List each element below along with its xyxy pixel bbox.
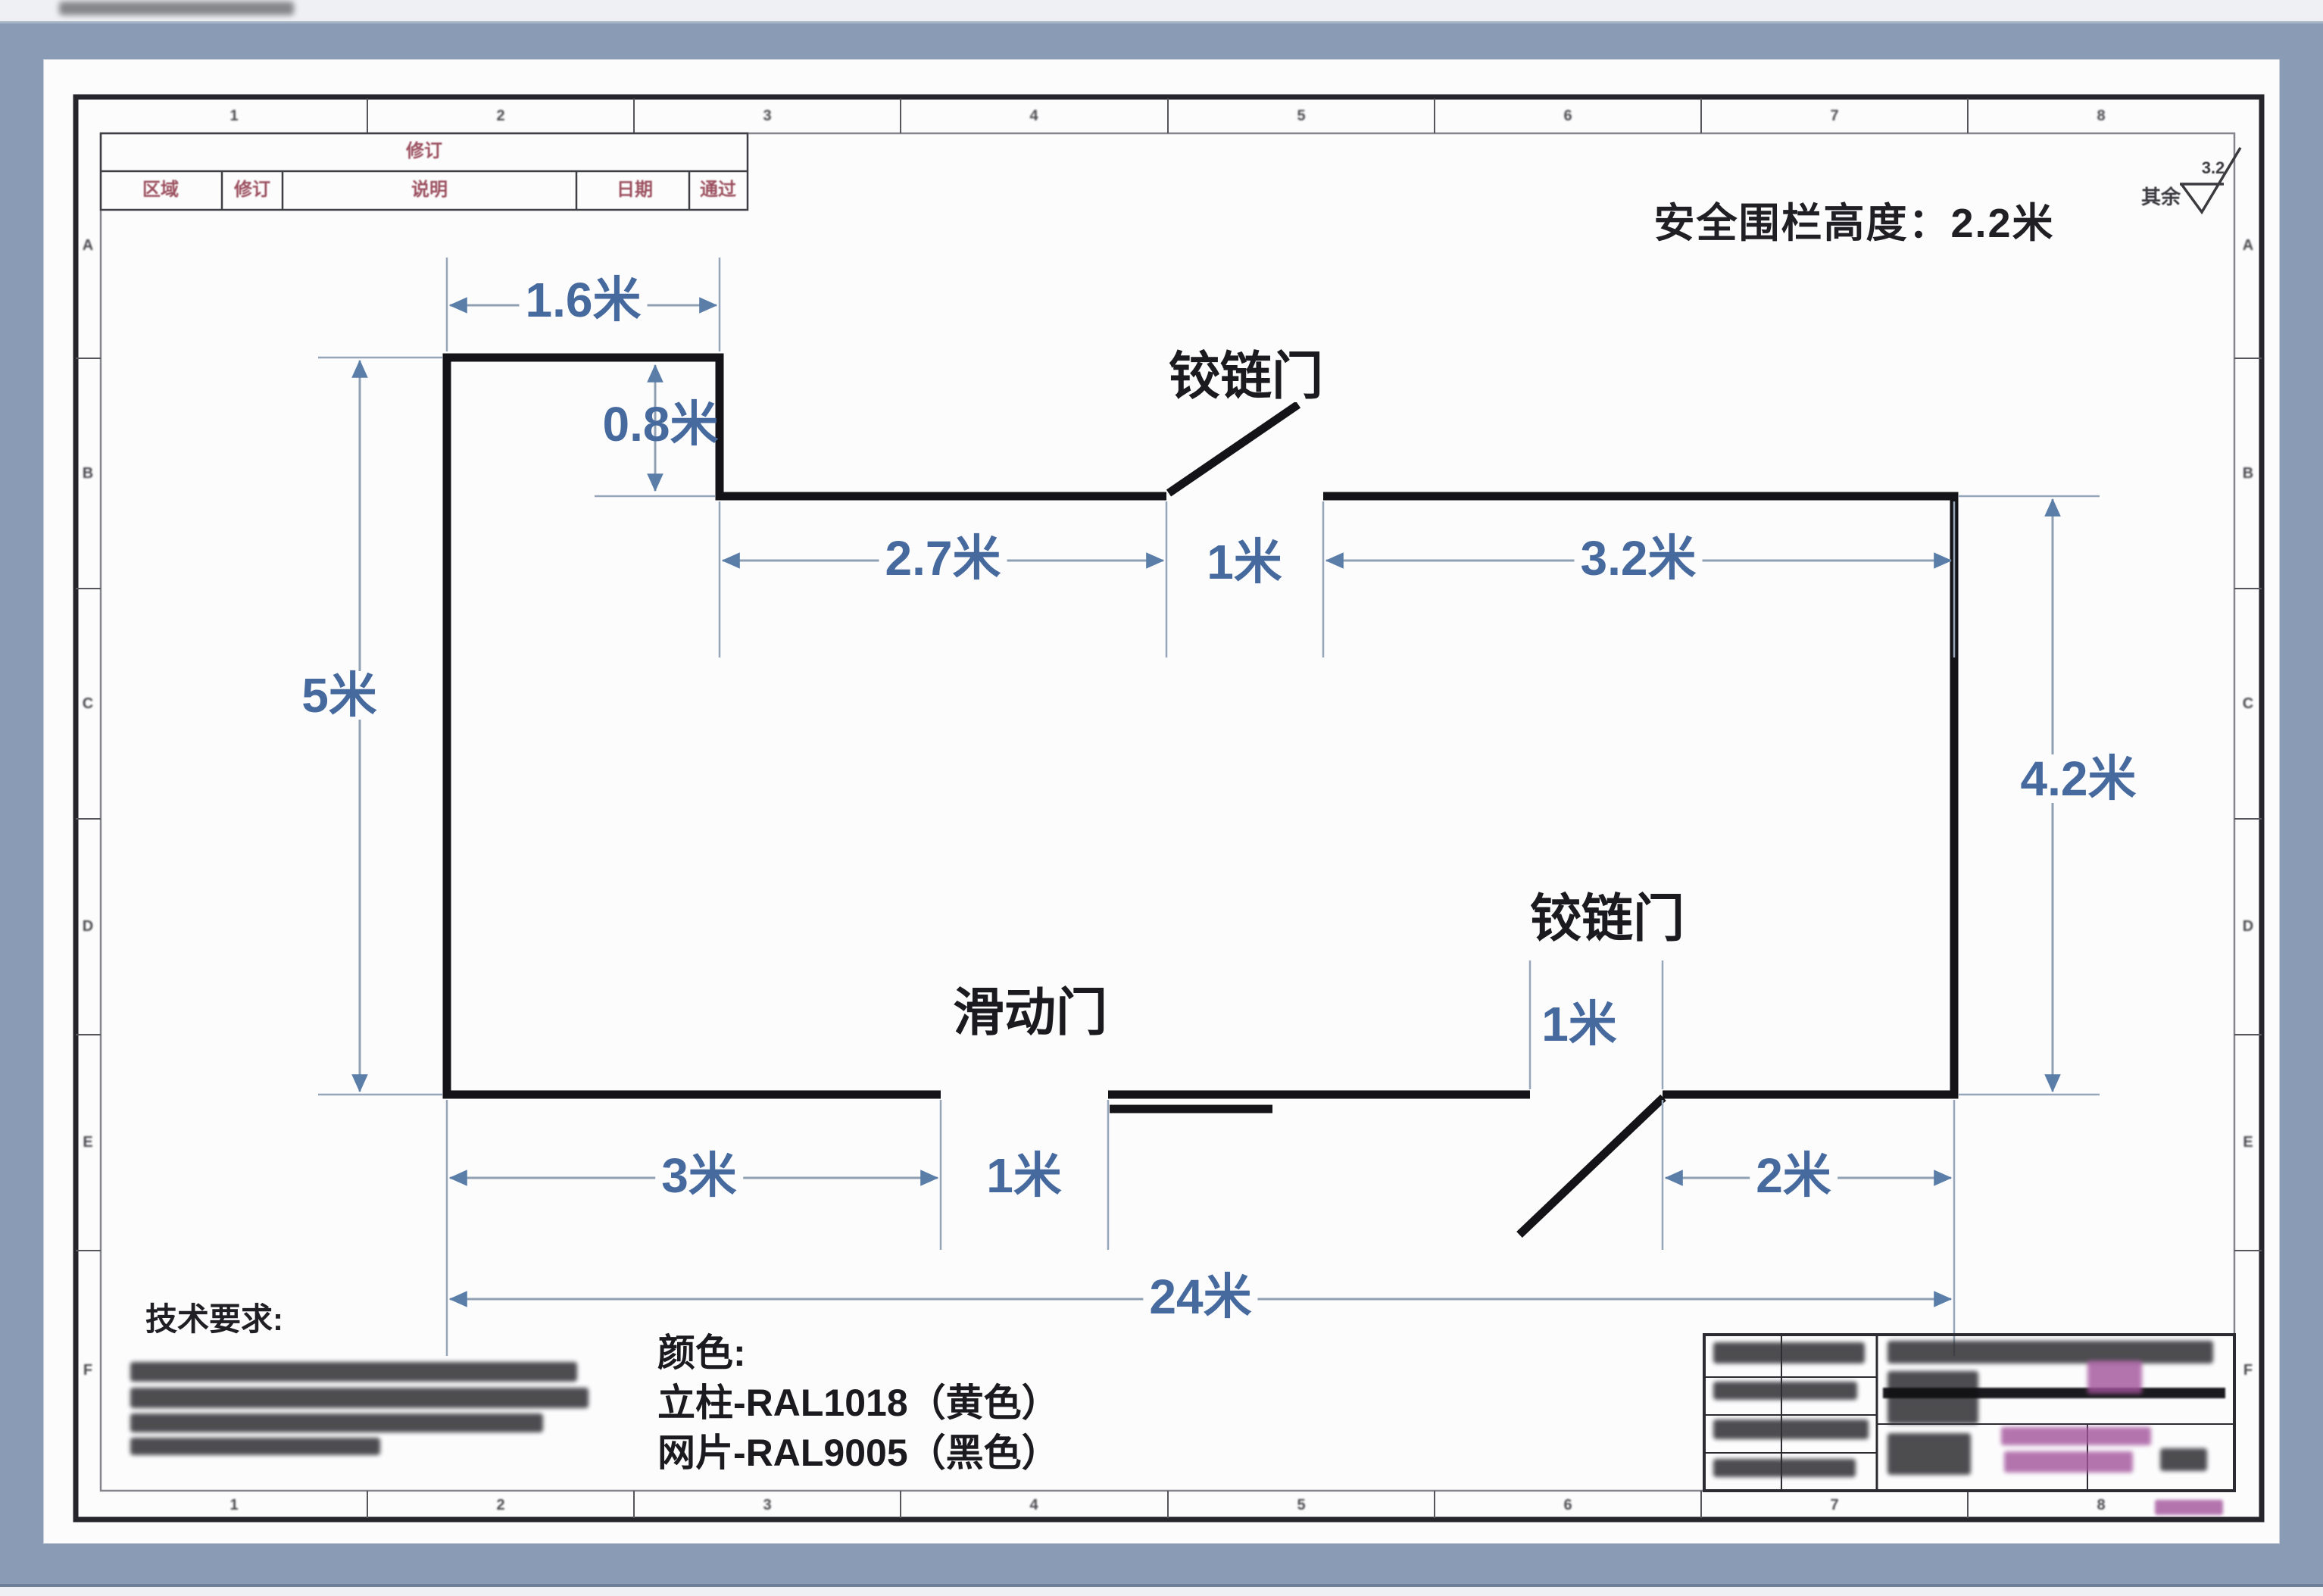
zone-col: 6 [1563,108,1572,123]
hinge-gate-bottom-label: 铰链门 [1525,893,1689,945]
revision-col-revision: 修订 [234,181,270,199]
zone-row: B [83,466,93,481]
dim-bottom-right-span: 2米 [1750,1151,1837,1200]
zone-col: 4 [1029,1498,1038,1513]
zone-row: B [2243,466,2253,481]
zone-col: 6 [1563,1498,1572,1513]
title-block-smudge [1887,1341,2213,1363]
tech-req-blurred-line [130,1438,380,1455]
zone-col: 5 [1297,108,1305,123]
zone-row: E [2243,1135,2253,1150]
zone-row: E [83,1135,92,1150]
dim-bottom-left-span: 3米 [655,1151,743,1200]
hinge-gate-top-label: 铰链门 [1164,351,1328,402]
zone-col: 1 [229,108,238,123]
screenshot-root: 修订 区域 修订 说明 日期 通过 安全围栏高度：2.2米 其余 3.2 铰链门… [0,0,2323,1596]
sliding-gate-label: 滑动门 [948,987,1112,1038]
zone-row: C [83,696,93,711]
revision-col-description: 说明 [411,181,448,199]
title-block-smudge [1713,1459,1856,1477]
zone-col: 7 [1830,108,1838,123]
tech-requirements-label: 技术要求: [145,1304,283,1335]
zone-col: 1 [229,1498,238,1513]
zone-col: 5 [1297,1498,1305,1513]
zone-col: 3 [763,108,771,123]
dim-right-height: 4.2米 [2015,754,2143,803]
zone-col: 7 [1830,1498,1838,1513]
dim-sliding-gate-width: 1米 [986,1151,1062,1200]
tech-req-blurred-line [130,1413,543,1432]
fence-outline [447,358,1954,1235]
zone-row: C [2243,696,2253,711]
fence-right-run [1323,496,1954,1095]
revision-col-date: 日期 [617,181,653,199]
roughness-symbol [2180,148,2240,212]
zone-col: 2 [496,1498,504,1513]
roughness-prefix: 其余 [2141,187,2181,207]
dim-top-right-span: 3.2米 [1575,534,1703,582]
dim-step-depth: 0.8米 [603,400,719,448]
zone-col: 8 [2097,108,2105,123]
hinge-gate-top-leaf [1169,404,1298,493]
title-block-stamp [2087,1360,2142,1394]
zone-row: D [2243,919,2253,934]
tech-req-blurred-line [130,1388,589,1408]
dim-left-height: 5米 [295,671,383,720]
revision-col-approved: 通过 [700,181,736,199]
title-block-smudge [2160,1448,2207,1471]
zone-row: A [83,238,93,253]
zone-row: F [2243,1363,2253,1378]
zone-col: 8 [2097,1498,2105,1513]
color-note-heading: 颜色: [657,1334,746,1372]
dim-top-offset: 1.6米 [520,276,648,324]
dim-top-left-span: 2.7米 [879,534,1007,582]
zone-col: 4 [1029,108,1038,123]
zone-col: 2 [496,108,504,123]
dim-bottom-gate-width: 1米 [1541,1000,1617,1048]
color-note-mesh: 网片-RAL9005（黑色） [657,1434,1060,1472]
title-block-smudge [1713,1382,1857,1400]
title-block-stamp [2004,1451,2133,1473]
zone-col: 3 [763,1498,771,1513]
fence-height-note: 安全围栏高度：2.2米 [1653,203,2054,244]
roughness-value: 3.2 [2202,160,2225,176]
hinge-gate-bottom-leaf [1519,1098,1663,1235]
page-number-stamp [2155,1500,2223,1515]
title-block-smudge [1713,1342,1865,1363]
title-block-stamp [2001,1427,2151,1445]
dim-top-gate-width: 1米 [1207,538,1282,586]
zone-row: A [2243,238,2253,253]
title-block-smudge [1887,1433,1971,1475]
revision-col-zone: 区域 [142,181,179,199]
title-block-bar [1883,1388,2225,1398]
dim-total-width: 24米 [1143,1273,1257,1321]
title-block-smudge [1713,1420,1869,1439]
zone-row: D [83,919,93,934]
revision-table-title: 修订 [406,142,442,161]
tech-req-blurred-line [130,1362,577,1382]
zone-row: F [83,1363,92,1378]
color-note-post: 立柱-RAL1018（黄色） [657,1384,1060,1422]
